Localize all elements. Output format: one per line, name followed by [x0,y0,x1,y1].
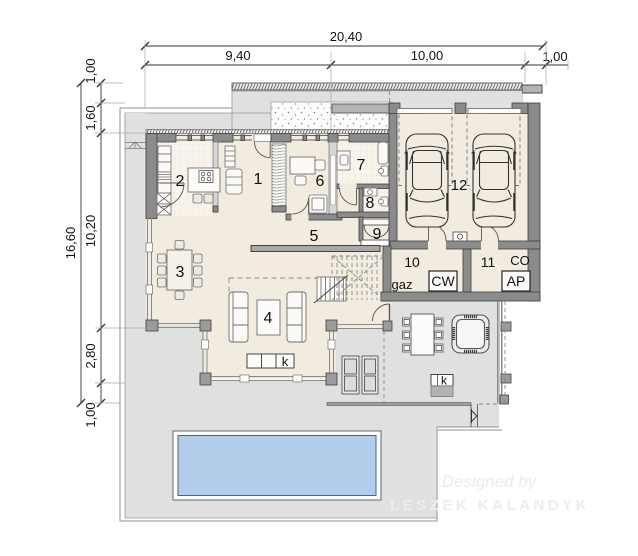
svg-text:1,00: 1,00 [83,402,98,427]
svg-text:k: k [282,354,289,369]
svg-text:10,20: 10,20 [83,215,98,248]
svg-text:3: 3 [176,264,185,281]
svg-text:6: 6 [316,173,325,190]
svg-text:16,60: 16,60 [63,227,78,260]
svg-text:k: k [441,374,448,388]
svg-text:1: 1 [254,171,263,188]
svg-text:10: 10 [404,254,420,270]
svg-text:10,00: 10,00 [411,48,444,63]
svg-text:2,80: 2,80 [83,343,98,368]
svg-text:7: 7 [357,157,366,174]
svg-text:11: 11 [481,254,496,270]
svg-text:8: 8 [366,195,375,212]
svg-text:20,40: 20,40 [330,29,363,44]
svg-text:2: 2 [176,173,185,190]
svg-text:LESZEK KALANDYK: LESZEK KALANDYK [390,497,590,514]
svg-text:1,00: 1,00 [83,58,98,83]
svg-text:5: 5 [310,228,319,245]
svg-text:CO: CO [510,253,530,268]
svg-text:AP: AP [507,273,526,289]
svg-text:9: 9 [373,226,382,243]
svg-text:9,40: 9,40 [225,48,250,63]
svg-text:Designed by: Designed by [442,472,538,491]
svg-text:4: 4 [264,310,273,327]
svg-text:1,60: 1,60 [83,105,98,130]
svg-text:12: 12 [451,177,468,194]
svg-text:gaz: gaz [392,277,413,292]
svg-text:CW: CW [431,273,455,289]
